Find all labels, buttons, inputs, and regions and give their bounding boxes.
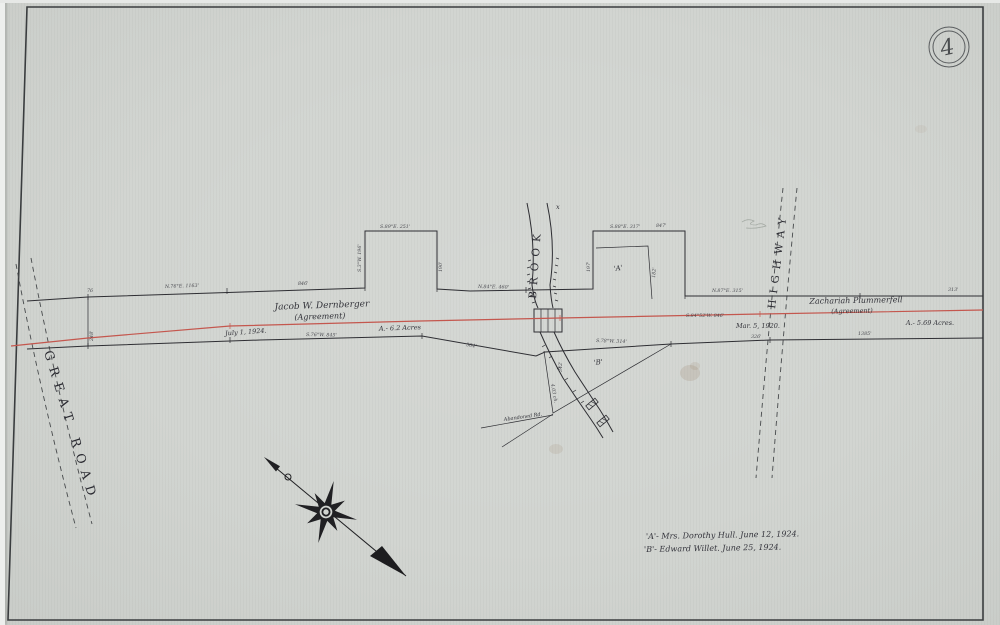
weir-symbol bbox=[586, 398, 598, 410]
compass-north-dart bbox=[264, 457, 280, 472]
bearing-annotation: S.76°W. 845' bbox=[306, 332, 337, 339]
bearing-annotation: 326' bbox=[751, 334, 761, 340]
parcel-a-boundary bbox=[596, 246, 652, 299]
bearing-annotation: 190' bbox=[438, 262, 444, 272]
bearing-annotation: N.76°E. 1163' bbox=[164, 283, 199, 290]
pipeline-centerline bbox=[11, 310, 983, 346]
bearing-annotation: 584' bbox=[466, 342, 477, 350]
highway: HIGHWAY bbox=[742, 188, 797, 478]
sheet-number-stamp: 4 bbox=[929, 27, 969, 67]
upper-boundary-line bbox=[27, 231, 983, 301]
bearing-annotation: S.88°E. 317' bbox=[610, 224, 640, 230]
note-line-1: 'A'- Mrs. Dorothy Hull. June 12, 1924. bbox=[646, 529, 799, 541]
parcel-a-lines: 'A' bbox=[596, 246, 652, 299]
parcel-b-label: 'B' bbox=[593, 358, 603, 367]
parcel-b-lines: 'B' Abandoned Rd. bbox=[481, 344, 671, 447]
pipeline-red-line bbox=[11, 310, 983, 346]
bearing-annotation: 342' bbox=[558, 362, 564, 372]
highway-label: HIGHWAY bbox=[766, 211, 790, 309]
parcel-a-label: 'A' bbox=[613, 264, 623, 273]
compass-needle-loop bbox=[285, 474, 291, 480]
acreage-label: A.- 5.69 Acres. bbox=[905, 319, 954, 327]
compass-rose bbox=[264, 457, 406, 576]
sheet-number: 4 bbox=[937, 35, 957, 63]
bearing-annotation: 248' bbox=[89, 331, 95, 342]
agreement-date: July 1, 1924. bbox=[223, 327, 267, 338]
bearing-annotation: S.84°52'W. 846' bbox=[686, 313, 724, 319]
owner-name-plummerfell: Zachariah Plummerfell bbox=[808, 295, 903, 306]
acreage-label: A.- 6.2 Acres bbox=[378, 323, 422, 333]
brook-bank bbox=[547, 203, 553, 308]
owner-labels: Jacob W. Dernberger (Agreement) July 1, … bbox=[223, 295, 954, 337]
bearing-annotation: N.87°E. 315' bbox=[711, 288, 743, 294]
owner-name-dernberger: Jacob W. Dernberger bbox=[272, 299, 370, 312]
bearing-annotation: 1385' bbox=[858, 331, 872, 337]
bearing-annotation: S.3°W. 196' bbox=[357, 244, 363, 272]
lower-boundary-line bbox=[27, 336, 983, 356]
abandoned-road-label: Abandoned Rd. bbox=[502, 412, 543, 424]
bearing-annotation: S.89°E. 251' bbox=[380, 224, 410, 230]
bearing-annotation: 847' bbox=[656, 223, 666, 229]
agreement-label: (Agreement) bbox=[831, 307, 873, 316]
survey-annotations: N.76°E. 1163' 846' S.3°W. 196' S.89°E. 2… bbox=[87, 223, 958, 404]
compass-star bbox=[287, 473, 365, 551]
pencil-scribble bbox=[742, 220, 766, 229]
bearing-annotation: 313' bbox=[948, 287, 958, 293]
bearing-annotation: 76 bbox=[87, 288, 93, 294]
weir-symbol bbox=[597, 415, 609, 427]
bearing-annotation: 182' bbox=[651, 267, 658, 278]
culvert-hatch bbox=[541, 309, 555, 332]
brook-bank-hatch bbox=[542, 345, 584, 403]
scanned-survey-map: 4 GREAT ROAD HIGHWAY 'A' bbox=[0, 0, 1000, 625]
bearing-annotation: N.84°E. 460' bbox=[477, 284, 509, 291]
station-ticks bbox=[88, 285, 860, 349]
brook-label: BROOK bbox=[527, 228, 544, 299]
bearing-annotation: S.78°W. 314' bbox=[596, 338, 627, 345]
note-line-2: 'B'- Edward Willet. June 25, 1924. bbox=[644, 543, 781, 554]
bearing-annotation: 197' bbox=[586, 262, 592, 272]
bearing-annotation: 846' bbox=[298, 281, 309, 287]
survey-map-svg: 4 GREAT ROAD HIGHWAY 'A' bbox=[0, 0, 1000, 625]
corridor-boundaries bbox=[27, 231, 983, 356]
brook-x-mark: x bbox=[556, 203, 560, 211]
surveyor-notes: 'A'- Mrs. Dorothy Hull. June 12, 1924. '… bbox=[644, 529, 799, 554]
agreement-date: Mar. 5, 1920. bbox=[735, 322, 780, 330]
agreement-label: (Agreement) bbox=[294, 311, 345, 322]
